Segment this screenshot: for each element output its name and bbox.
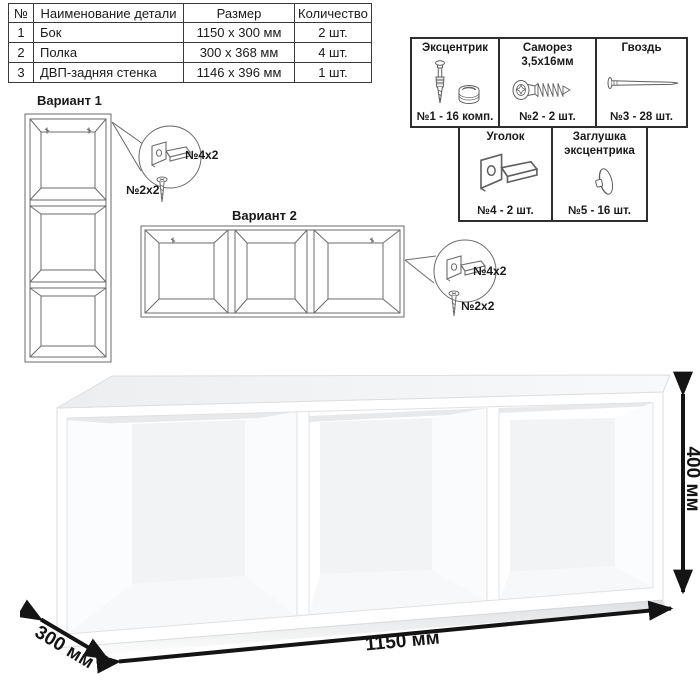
- variant2-bracket-qty-label: №4х2: [473, 264, 506, 278]
- part-size: 300 x 368 мм: [184, 43, 295, 63]
- part-name: Бок: [34, 23, 184, 43]
- variant1-bracket-qty-label: №4х2: [185, 148, 218, 162]
- legend-cell-cam-cap: Заглушка эксцентрика №5 - 16 шт.: [551, 126, 648, 222]
- legend-title-line2: эксцентрика: [564, 145, 635, 159]
- part-num: 3: [9, 63, 34, 83]
- assembly-instruction-sheet: № Наименование детали Размер Количество …: [0, 0, 700, 690]
- legend-title: Саморез: [521, 42, 573, 56]
- legend-cell-cam-lock: Эксцентрик №1 - 16 комп.: [410, 37, 500, 128]
- legend-cell-screw: Саморез 3,5х16мм №2 - 2 шт.: [498, 37, 597, 128]
- legend-title: Уголок: [486, 131, 524, 145]
- variant2-screw-qty-label: №2х2: [461, 299, 494, 313]
- header-qty: Количество: [295, 4, 372, 23]
- part-qty: 4 шт.: [295, 43, 372, 63]
- part-size: 1146 x 396 мм: [184, 63, 295, 83]
- legend-cell-nail: Гвоздь №3 - 28 шт.: [595, 37, 688, 128]
- legend-count: №2 - 2 шт.: [519, 111, 575, 123]
- part-qty: 2 шт.: [295, 23, 372, 43]
- header-size: Размер: [184, 4, 295, 23]
- legend-title: Заглушка: [564, 131, 635, 145]
- variant1-screw-qty-label: №2х2: [126, 183, 159, 197]
- header-num: №: [9, 4, 34, 23]
- legend-count: №5 - 16 шт.: [568, 205, 631, 217]
- cam-lock-icon: [412, 56, 498, 111]
- part-num: 2: [9, 43, 34, 63]
- nail-icon: [597, 56, 686, 111]
- part-num: 1: [9, 23, 34, 43]
- legend-title: Эксцентрик: [422, 42, 488, 56]
- table-row: 2 Полка 300 x 368 мм 4 шт.: [9, 43, 372, 63]
- height-dimension-label: 400 мм: [681, 429, 700, 529]
- parts-table-header-row: № Наименование детали Размер Количество: [9, 4, 372, 23]
- screw-icon: [500, 69, 595, 111]
- legend-count: №1 - 16 комп.: [417, 111, 494, 123]
- legend-count: №3 - 28 шт.: [610, 111, 673, 123]
- cam-cap-icon: [553, 158, 646, 205]
- table-row: 1 Бок 1150 x 300 мм 2 шт.: [9, 23, 372, 43]
- header-name: Наименование детали: [34, 4, 184, 23]
- legend-title: Гвоздь: [621, 42, 661, 56]
- table-row: 3 ДВП-задняя стенка 1146 x 396 мм 1 шт.: [9, 63, 372, 83]
- part-name: Полка: [34, 43, 184, 63]
- part-name: ДВП-задняя стенка: [34, 63, 184, 83]
- parts-table: № Наименование детали Размер Количество …: [8, 3, 372, 83]
- legend-title-line2: 3,5х16мм: [521, 56, 573, 70]
- part-qty: 1 шт.: [295, 63, 372, 83]
- variant2-drawing: [135, 213, 520, 338]
- corner-bracket-icon: [460, 145, 551, 205]
- legend-cell-corner-bracket: Уголок №4 - 2 шт.: [458, 126, 553, 222]
- variant1-label: Вариант 1: [37, 93, 102, 108]
- part-size: 1150 x 300 мм: [184, 23, 295, 43]
